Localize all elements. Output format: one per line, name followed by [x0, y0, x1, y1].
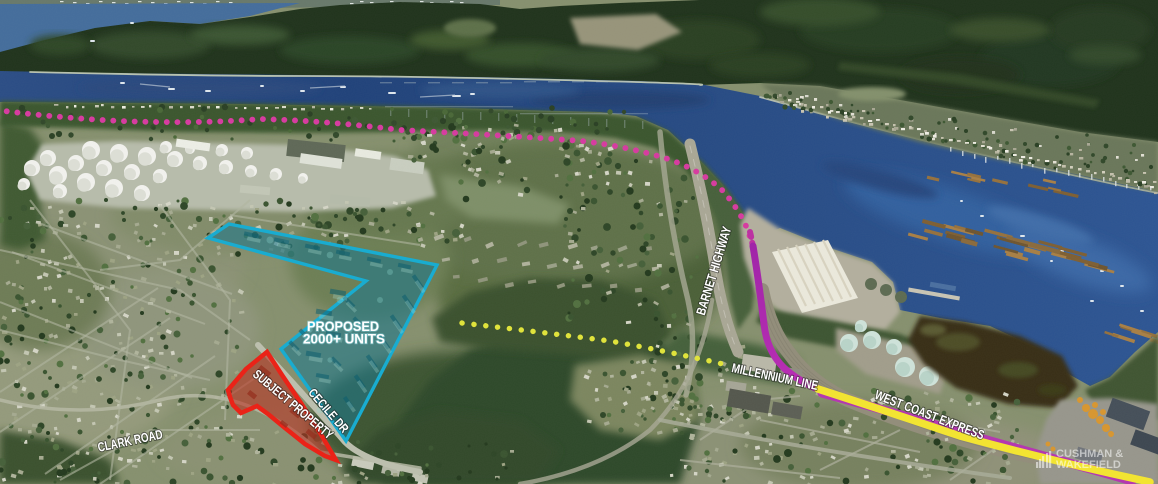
svg-text:WAKEFIELD: WAKEFIELD [1056, 459, 1121, 471]
svg-text:2000+ UNITS: 2000+ UNITS [303, 332, 385, 347]
